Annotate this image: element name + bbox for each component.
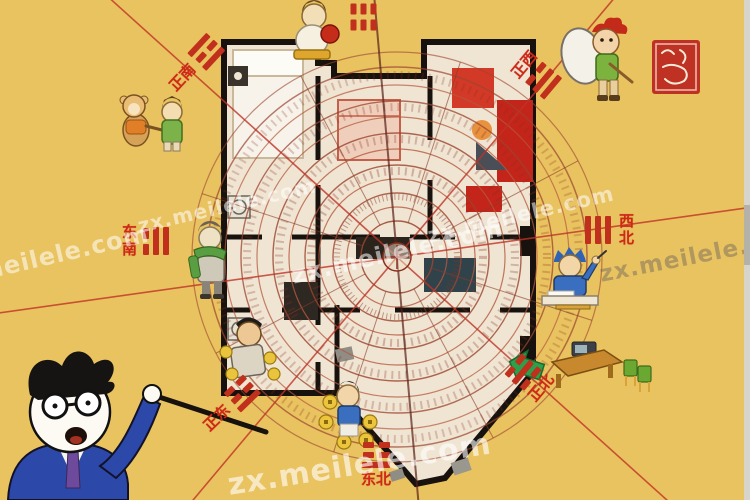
trigram-xun bbox=[143, 227, 169, 255]
direction-text: 东南 bbox=[121, 224, 136, 258]
illustration-canvas bbox=[0, 0, 750, 500]
direction-label-northwest: 西北 bbox=[584, 213, 633, 247]
trigram-qian bbox=[585, 216, 611, 244]
kid-with-treasure-pot bbox=[294, 0, 339, 59]
scrollbar-thumb[interactable] bbox=[744, 205, 750, 265]
direction-label-southeast: 东南 bbox=[121, 224, 170, 258]
direction-label-southwest: 西南 bbox=[348, 0, 378, 30]
trigram-kun bbox=[350, 4, 376, 31]
page-edge-strip bbox=[744, 0, 750, 500]
sack-carrier-kid bbox=[556, 18, 632, 101]
direction-text: 西北 bbox=[618, 213, 633, 247]
square-seal-stamp bbox=[652, 40, 700, 94]
feng-shui-floorplan-illustration: 正南 西南 正西 西北 东南 正东 东北 正北 zx.meilele.com z… bbox=[0, 0, 750, 500]
direction-text: 东北 bbox=[361, 472, 391, 487]
trigram-gen bbox=[362, 442, 390, 468]
monkey-and-kid-pair bbox=[120, 95, 182, 151]
direction-label-northeast: 东北 bbox=[361, 442, 391, 487]
